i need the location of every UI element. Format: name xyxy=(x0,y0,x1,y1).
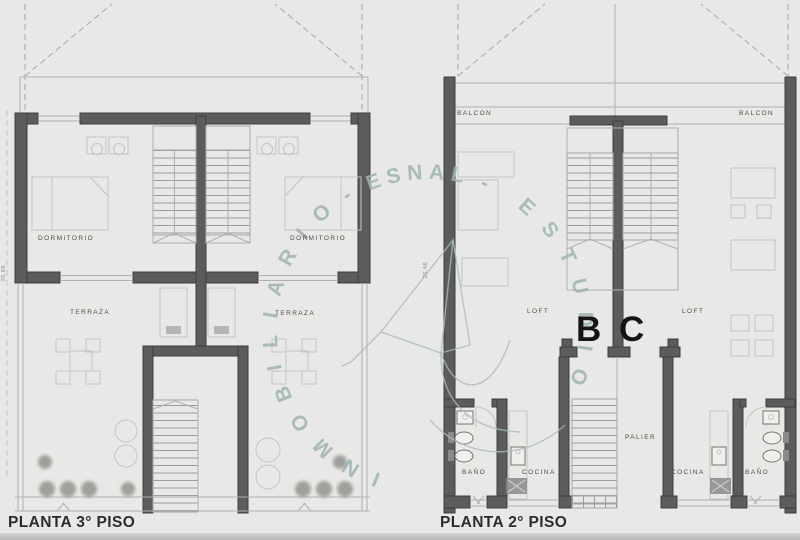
room-label-dormitorio-left: DORMITORIO xyxy=(38,236,94,243)
bottom-edge-strip xyxy=(0,533,800,540)
watermark-text-estudio: ESTUDIO xyxy=(514,194,597,404)
dimension-plan2: 25.46 xyxy=(423,262,429,278)
plan2-title: PLANTA 2° PISO xyxy=(440,514,567,532)
watermark-text-esnal: - ESNAL - xyxy=(338,161,498,207)
plan3-title: PLANTA 3° PISO xyxy=(8,514,135,532)
room-label-palier: PALIER xyxy=(625,435,656,442)
floor-plan-sheet: - ESNAL - ESTUDIO INMOBILIARIO DORMITORI… xyxy=(0,0,800,540)
origami-crane-logo xyxy=(342,240,565,452)
unit-letter-c: C xyxy=(619,312,644,347)
room-label-balcon-left: BALCON xyxy=(457,111,492,118)
svg-text:ESTUDIO: ESTUDIO xyxy=(514,194,597,404)
dimension-plan3: 25.66 xyxy=(1,265,7,281)
room-label-loft-right: LOFT xyxy=(682,309,704,316)
esnal-watermark: - ESNAL - ESTUDIO INMOBILIARIO xyxy=(0,0,800,540)
watermark-arc-text: - ESNAL - ESTUDIO INMOBILIARIO xyxy=(259,161,597,491)
room-label-terraza-left: TERRAZA xyxy=(70,310,110,317)
room-label-cocina-left: COCINA xyxy=(522,470,556,477)
unit-letter-b: B xyxy=(576,312,601,347)
room-label-loft-left: LOFT xyxy=(527,309,549,316)
room-label-bano-left: BAÑO xyxy=(462,470,486,477)
room-label-bano-right: BAÑO xyxy=(745,470,769,477)
room-label-terraza-right: TERRAZA xyxy=(275,311,315,318)
room-label-cocina-right: COCINA xyxy=(671,470,705,477)
svg-text:- ESNAL -: - ESNAL - xyxy=(338,161,498,207)
room-label-dormitorio-right: DORMITORIO xyxy=(290,236,346,243)
room-label-balcon-right: BALCON xyxy=(739,111,774,118)
